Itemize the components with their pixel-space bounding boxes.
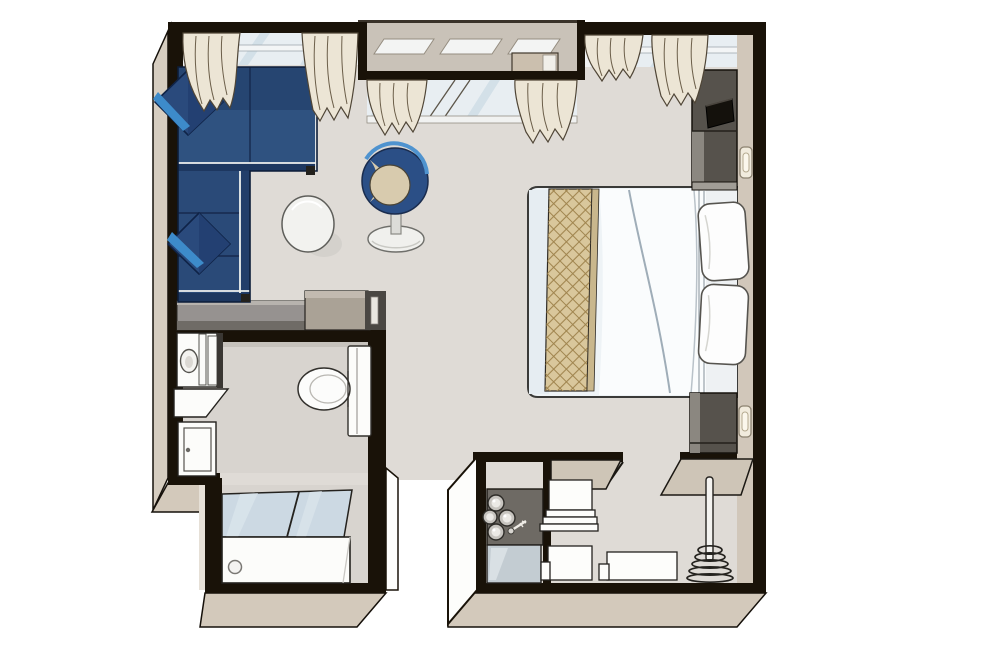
wall-top-left xyxy=(168,22,367,33)
bottle-top-view xyxy=(499,510,515,526)
bottle-top-view xyxy=(483,510,497,524)
wall-switch-lower xyxy=(739,406,751,437)
nightstand-side-light xyxy=(690,393,700,453)
sofa-chaise-edge xyxy=(240,171,250,293)
cabinet-base xyxy=(692,182,737,190)
switch-rocker xyxy=(743,153,749,172)
sink-drain xyxy=(185,356,193,368)
wall-notch-band xyxy=(358,71,585,80)
switch-rocker xyxy=(742,412,748,431)
chair-seat-cushion xyxy=(370,165,410,205)
toilet-bowl xyxy=(298,368,350,410)
closet-hanging-rod xyxy=(706,477,713,561)
balcony-bench-cushion xyxy=(543,55,556,71)
balcony-outer-edge xyxy=(358,20,585,23)
bed-pillow-bottom xyxy=(698,284,749,365)
cabinet-knob xyxy=(186,448,190,452)
cabinet-side-light xyxy=(692,131,704,187)
wall-top-right xyxy=(577,22,766,35)
floor-plan-image xyxy=(0,0,998,665)
bathtub-area xyxy=(222,490,352,583)
sofa-chaise-front xyxy=(178,293,250,302)
bath-bottom-bevel xyxy=(200,593,386,627)
bath-left-face xyxy=(199,485,205,590)
cabinet-top xyxy=(305,291,368,298)
wall-bath-bottom xyxy=(205,583,386,593)
vanity-mirror-panel xyxy=(199,334,206,385)
towel-shelf-lower xyxy=(541,546,592,580)
wall-tub-left xyxy=(205,478,222,588)
tub-chair xyxy=(362,143,428,252)
wall-bottom-right xyxy=(448,583,766,593)
toilet-tank xyxy=(348,346,371,436)
wall-right xyxy=(753,22,766,593)
vanity-mirror-panel xyxy=(208,336,217,385)
sofa-foot xyxy=(306,166,315,175)
table-top xyxy=(282,196,334,252)
sofa-front-edge xyxy=(178,163,317,171)
wall-switch-upper xyxy=(740,147,752,178)
tub-drain xyxy=(229,561,242,574)
double-bed xyxy=(528,187,750,397)
bottle-top-view xyxy=(488,495,504,511)
vanity-cabinet xyxy=(178,422,216,476)
towel-shelf-stack xyxy=(540,480,598,531)
minibar xyxy=(483,489,543,583)
balcony-window-slats xyxy=(374,39,560,54)
storage-drawer xyxy=(599,552,677,580)
cabinet-slot xyxy=(371,297,378,324)
bed-pillow-top xyxy=(697,201,749,281)
bottle-top-view xyxy=(488,524,504,540)
bathtub xyxy=(222,537,350,583)
floor-plan-svg xyxy=(0,0,998,665)
nightstand xyxy=(690,393,737,453)
main-bottom-bevel xyxy=(448,593,766,627)
bed-runner xyxy=(545,189,599,391)
bath-wall-face xyxy=(386,468,398,590)
sofa-foot xyxy=(241,294,250,302)
vanity-side-panel xyxy=(217,333,223,388)
runner-lattice xyxy=(545,189,592,391)
